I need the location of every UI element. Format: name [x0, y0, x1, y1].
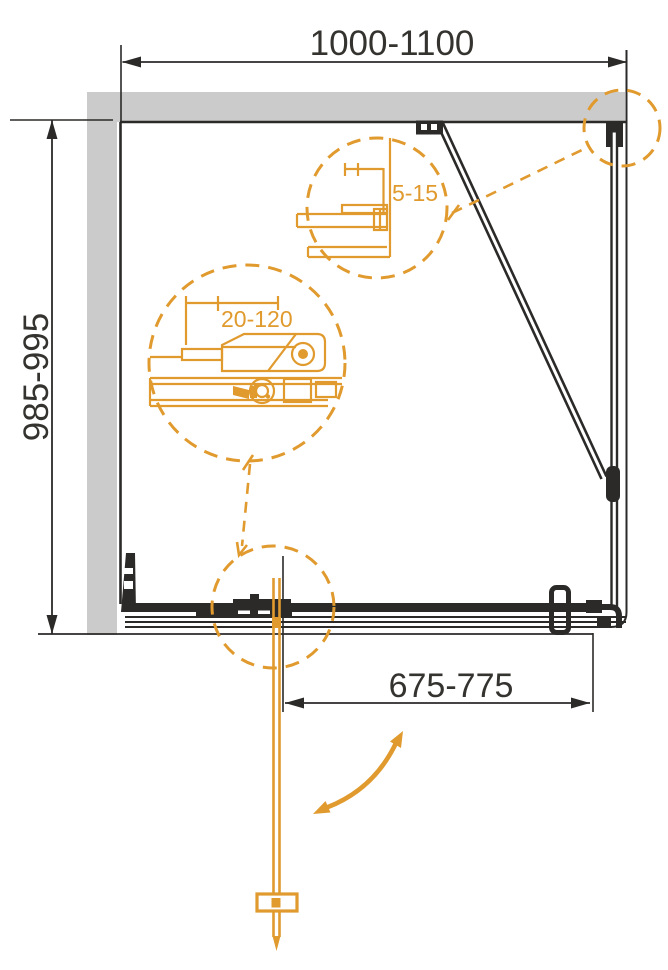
pivot-slit-2 [258, 611, 270, 615]
corner-foot [597, 618, 611, 627]
wall-left [87, 92, 117, 635]
detail-bracket-20-120: 20-120 [150, 296, 342, 406]
dimension-arrow-right [571, 698, 590, 709]
wall-profile-cap-leg-left [606, 132, 612, 147]
bracket-screw-2 [431, 124, 437, 130]
detail-adjuster-inner [256, 385, 268, 397]
bottom-rail-assembly [121, 553, 626, 633]
door-handle-hub [272, 898, 281, 908]
dimension-label-left: 985-995 [17, 313, 56, 441]
pivot-slit-1 [238, 611, 250, 615]
detail-block-center [284, 379, 311, 402]
door-swing-arc [328, 743, 396, 807]
door-hinge-block [606, 466, 620, 502]
shower-enclosure-diagram: 1000-1100 985-995 675-775 [0, 0, 668, 970]
detail-roller-hub [298, 349, 308, 359]
dimension-label-bottom: 675-775 [389, 667, 514, 705]
door-glass-line-2 [443, 122, 607, 477]
detail-screw-2 [266, 394, 270, 398]
door-diagonal [416, 121, 607, 480]
rail-bar [125, 603, 597, 612]
fixed-panel-right [606, 122, 623, 611]
detail-label-5-15: 5-15 [392, 180, 438, 206]
wall-top [87, 92, 625, 122]
leader-line-bottom [242, 464, 250, 546]
detail-wall-profile-5-15: 5-15 [297, 138, 438, 257]
wall-profile-cap-leg-right [618, 132, 624, 147]
technical-drawing-page: 1000-1100 985-995 675-775 [0, 0, 668, 970]
detail-label-20-120: 20-120 [221, 306, 293, 332]
dimension-label-top: 1000-1100 [310, 24, 475, 63]
detail-spacer [250, 386, 257, 398]
left-profile-slot-1 [124, 568, 133, 574]
detail-circle-bracket [149, 265, 345, 461]
left-profile-slot-2 [124, 581, 133, 589]
dimension-arrow-left [285, 698, 304, 709]
detail-left-bar [182, 349, 222, 360]
dimension-arrow-right [608, 57, 627, 68]
door-glass-line-1 [438, 125, 602, 480]
open-door-tip [273, 936, 281, 951]
leader-line-top [452, 148, 586, 213]
wall-profile-cap [606, 122, 623, 133]
leader-tick-top [448, 205, 459, 220]
leader-tick-bottom [243, 455, 253, 470]
dimension-arrow-left [122, 57, 141, 68]
dimension-arrow-up [47, 120, 58, 139]
dimension-arrow-down [47, 615, 58, 634]
bracket-screw-1 [421, 124, 427, 130]
door-top-bracket [416, 121, 443, 135]
detail-wedge [233, 386, 249, 399]
swing-arrowhead-down [313, 801, 331, 814]
